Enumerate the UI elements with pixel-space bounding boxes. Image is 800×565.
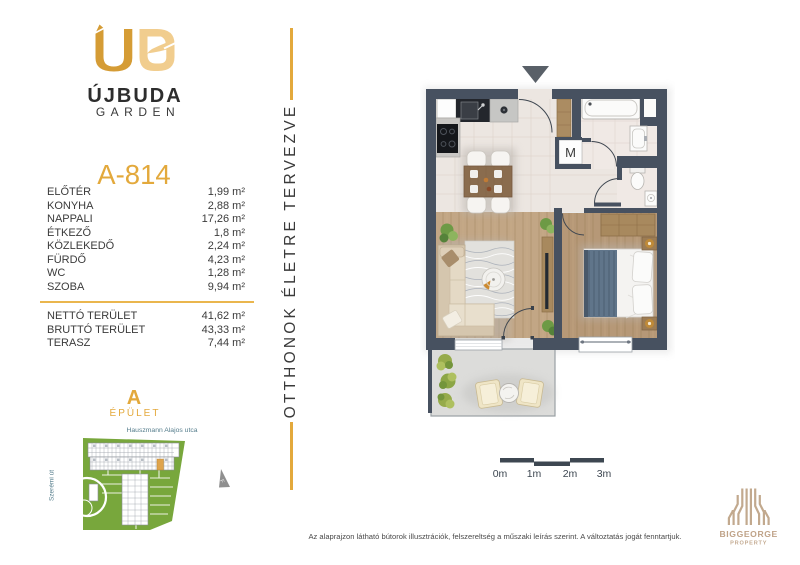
svg-text:1m: 1m xyxy=(527,468,542,480)
svg-text:3m: 3m xyxy=(597,468,612,480)
svg-text:PROPERTY: PROPERTY xyxy=(730,541,767,547)
svg-text:M: M xyxy=(565,145,576,160)
svg-text:2m: 2m xyxy=(563,468,578,480)
svg-text:BIGGEORGE: BIGGEORGE xyxy=(719,529,777,539)
svg-text:0m: 0m xyxy=(493,468,508,480)
